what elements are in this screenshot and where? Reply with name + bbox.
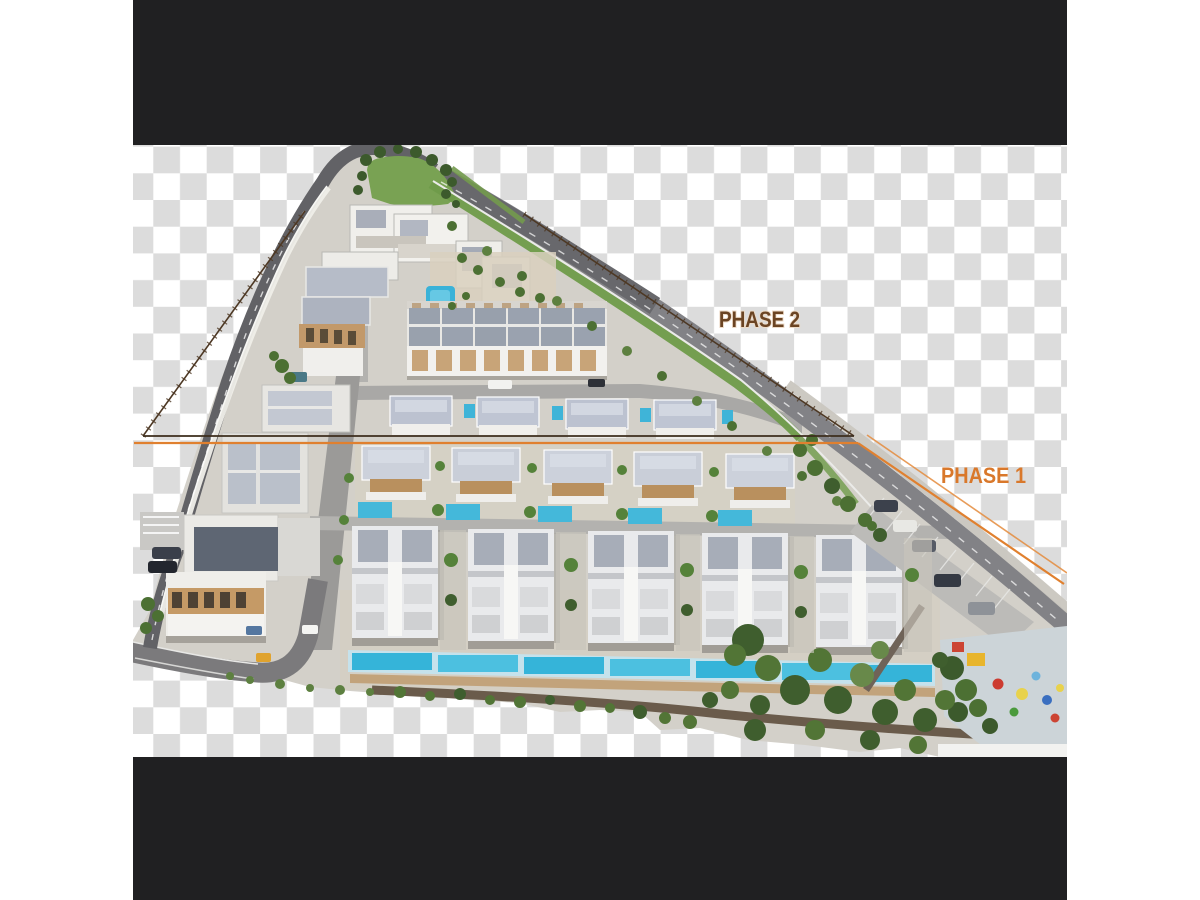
svg-text:PHASE 1: PHASE 1 [941,463,1026,488]
svg-text:PHASE 2: PHASE 2 [719,307,800,332]
